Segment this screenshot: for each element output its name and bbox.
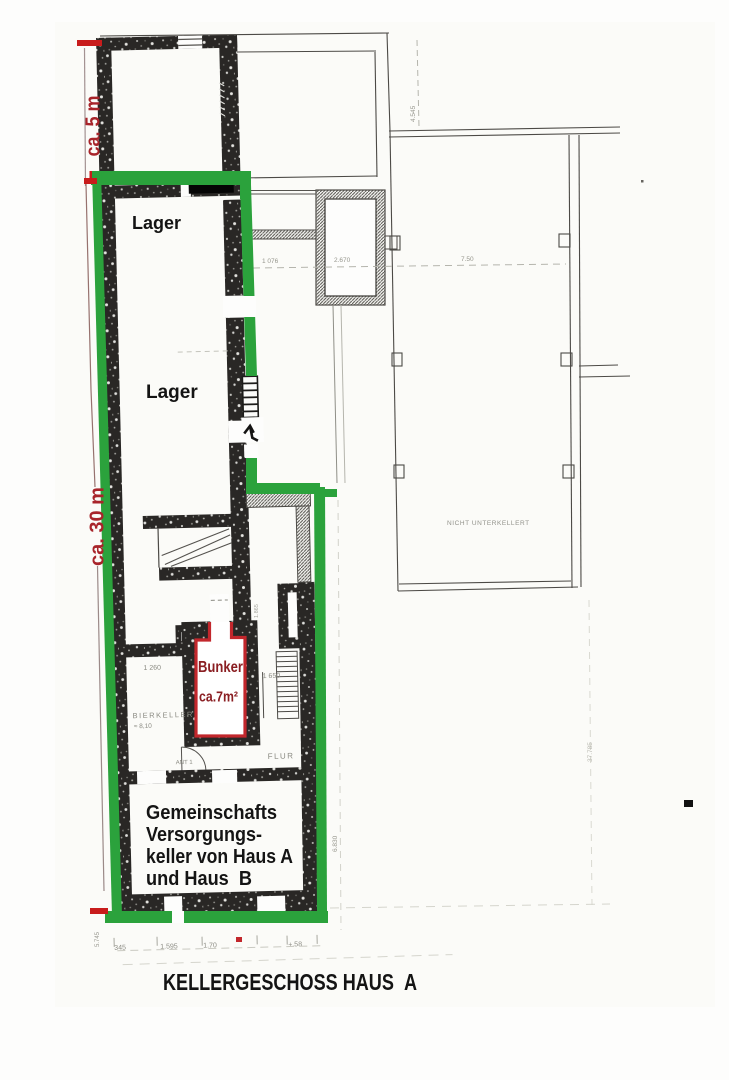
svg-text:7.50: 7.50 <box>461 256 474 263</box>
svg-text:ANT 1: ANT 1 <box>176 760 194 766</box>
svg-text:5.745: 5.745 <box>95 931 101 947</box>
svg-text:1 260: 1 260 <box>143 665 161 672</box>
svg-text:BIERKELLER: BIERKELLER <box>132 710 193 720</box>
svg-text:1 650: 1 650 <box>263 673 281 680</box>
svg-text:keller von Haus A: keller von Haus A <box>146 846 293 868</box>
svg-text:4.545: 4.545 <box>410 105 417 122</box>
svg-text:ca. 30 m: ca. 30 m <box>87 487 109 566</box>
svg-text:Lager: Lager <box>146 382 198 403</box>
svg-text:+.58: +.58 <box>288 941 302 948</box>
svg-text:ca. 5 m: ca. 5 m <box>83 96 105 157</box>
svg-text:6.830: 6.830 <box>332 835 339 852</box>
svg-text:≈ 8,10: ≈ 8,10 <box>134 723 153 730</box>
svg-text:FLUR: FLUR <box>268 751 295 761</box>
svg-text:Gemeinschafts: Gemeinschafts <box>146 802 277 824</box>
svg-text:ca.7m²: ca.7m² <box>199 690 238 706</box>
svg-text:Versorgungs-: Versorgungs- <box>146 824 262 846</box>
svg-text:NICHT UNTERKELLERT: NICHT UNTERKELLERT <box>447 520 530 527</box>
svg-text:Bunker: Bunker <box>198 659 243 676</box>
svg-text:Lager: Lager <box>132 213 181 233</box>
svg-text:1.865: 1.865 <box>254 604 260 618</box>
svg-text:1 076: 1 076 <box>262 258 279 265</box>
svg-text:und Haus B: und Haus B <box>146 868 252 890</box>
svg-text:KELLERGESCHOSS HAUS A: KELLERGESCHOSS HAUS A <box>163 969 417 995</box>
svg-text:2.670: 2.670 <box>334 257 351 264</box>
svg-text:37.785: 37.785 <box>587 742 594 762</box>
